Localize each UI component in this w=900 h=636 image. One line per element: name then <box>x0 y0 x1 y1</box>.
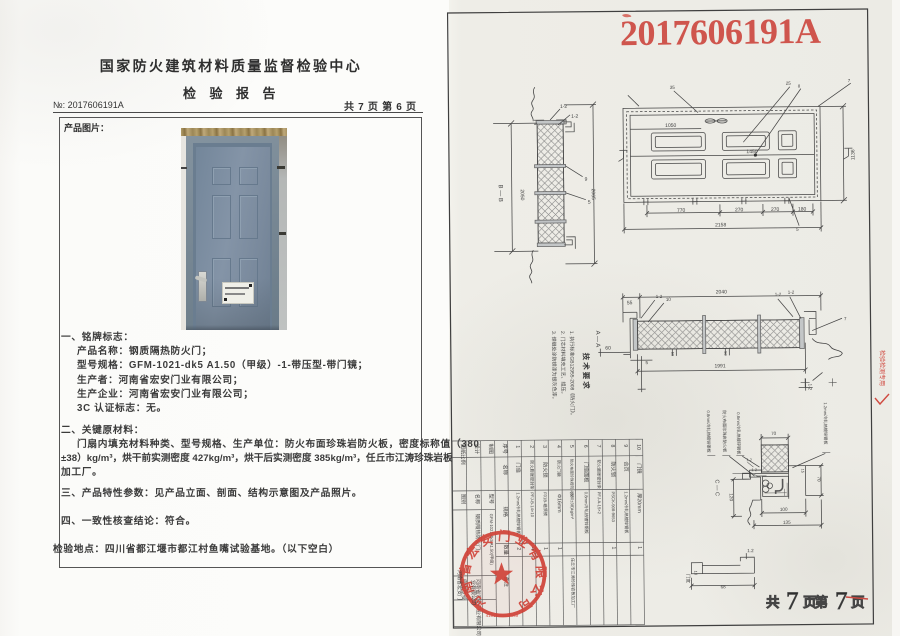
svg-text:任丘市江涛珍珠岩板加工厂: 任丘市江涛珍珠岩板加工厂 <box>569 558 576 608</box>
svg-text:2065: 2065 <box>590 189 596 200</box>
svg-text:9: 9 <box>585 177 588 183</box>
svg-text:0.8mm冷轧热镀锌钢板: 0.8mm冷轧热镀锌钢板 <box>583 492 590 535</box>
svg-text:序号: 序号 <box>501 443 509 453</box>
svg-text:PFJ-B-14×10: PFJ-B-14×10 <box>530 492 535 518</box>
svg-text:2040: 2040 <box>716 289 727 295</box>
svg-text:B — B: B — B <box>497 185 503 202</box>
svg-text:规格: 规格 <box>502 506 510 517</box>
svg-text:1-2: 1-2 <box>775 292 782 297</box>
svg-text:型号: 型号 <box>488 494 496 504</box>
svg-text:1: 1 <box>514 445 520 448</box>
svg-text:(380±38)kg/m³: (380±38)kg/m³ <box>570 492 575 520</box>
svg-text:河南省宏安门: 河南省宏安门 <box>456 570 463 600</box>
svg-text:100: 100 <box>780 507 788 512</box>
svg-text:55: 55 <box>627 300 633 306</box>
svg-text:Φ16mm: Φ16mm <box>556 494 562 513</box>
svg-text:7: 7 <box>844 316 847 321</box>
svg-text:名称: 名称 <box>501 464 509 474</box>
svg-text:页第: 页第 <box>803 594 829 610</box>
svg-text:门镜: 门镜 <box>635 463 643 473</box>
svg-text:1: 1 <box>610 546 616 549</box>
svg-text:设计: 设计 <box>473 444 481 454</box>
svg-text:1.2: 1.2 <box>747 548 754 553</box>
svg-text:门扇面板: 门扇面板 <box>582 462 590 484</box>
svg-text:1-2: 1-2 <box>746 458 752 462</box>
svg-text:120: 120 <box>729 493 734 501</box>
svg-text:70: 70 <box>771 431 777 436</box>
svg-text:1-2: 1-2 <box>788 290 795 295</box>
svg-text:F01B-磁质锁: F01B-磁质锁 <box>542 492 549 517</box>
svg-text:10: 10 <box>635 444 641 450</box>
svg-text:8: 8 <box>609 444 615 447</box>
svg-text:10: 10 <box>666 297 672 302</box>
svg-text:2. 门芯材料填充工艺、组压。: 2. 门芯材料填充工艺、组压。 <box>559 331 567 397</box>
svg-text:技术要求: 技术要求 <box>581 353 591 391</box>
svg-text:6: 6 <box>582 445 588 448</box>
svg-text:0.8mm冷轧热镀锌钢板: 0.8mm冷轧热镀锌钢板 <box>735 412 742 455</box>
svg-text:2017606191A: 2017606191A <box>620 11 821 53</box>
svg-text:1-2: 1-2 <box>560 104 568 110</box>
svg-text:770: 770 <box>677 208 686 214</box>
svg-text:1.2mm冷轧热镀锌钢板: 1.2mm冷轧热镀锌钢板 <box>515 492 522 535</box>
svg-text:5: 5 <box>588 200 591 206</box>
svg-text:C — C: C — C <box>714 479 720 496</box>
svg-text:2050: 2050 <box>519 189 525 200</box>
svg-text:7: 7 <box>786 588 799 615</box>
svg-text:防火膨胀密封条: 防火膨胀密封条 <box>595 460 602 490</box>
svg-text:门扇: 门扇 <box>514 462 522 472</box>
svg-text:270: 270 <box>735 207 744 213</box>
svg-text:1136: 1136 <box>850 149 856 160</box>
svg-text:1.2mm冷轧热镀锌钢板: 1.2mm冷轧热镀锌钢板 <box>623 491 630 534</box>
svg-text:25: 25 <box>786 81 792 86</box>
svg-text:4: 4 <box>555 445 561 448</box>
svg-text:防火锁: 防火锁 <box>609 461 617 477</box>
svg-text:门宽: 门宽 <box>684 574 691 584</box>
svg-text:制图: 制图 <box>487 444 495 454</box>
svg-text:2: 2 <box>528 445 534 448</box>
svg-text:7: 7 <box>595 445 601 448</box>
svg-text:4101050001099: 4101050001099 <box>486 613 519 618</box>
svg-text:业有限公司: 业有限公司 <box>470 580 477 605</box>
svg-text:1050: 1050 <box>665 123 676 129</box>
svg-text:1991: 1991 <box>714 363 725 369</box>
svg-text:50: 50 <box>670 352 674 356</box>
svg-text:3. 焊缝处涂防锈漆为银灰色漆。: 3. 焊缝处涂防锈漆为银灰色漆。 <box>550 331 558 402</box>
svg-text:图别: 图别 <box>460 494 468 504</box>
svg-text:1: 1 <box>556 547 562 550</box>
svg-text:1: 1 <box>636 546 642 549</box>
svg-text:合页: 合页 <box>622 461 630 471</box>
svg-text:1: 1 <box>542 547 548 550</box>
svg-text:7: 7 <box>835 588 848 615</box>
svg-text:名称: 名称 <box>474 494 482 504</box>
svg-text:15: 15 <box>800 469 804 473</box>
svg-text:70: 70 <box>817 476 822 482</box>
svg-text:5: 5 <box>645 360 648 365</box>
svg-text:35: 35 <box>670 85 676 90</box>
svg-text:1-2: 1-2 <box>808 384 813 391</box>
svg-text:1-2: 1-2 <box>656 294 663 299</box>
svg-text:13: 13 <box>693 571 698 576</box>
svg-text:防火锁: 防火锁 <box>541 462 549 478</box>
svg-text:1450: 1450 <box>746 149 757 155</box>
svg-text:PFJ-A-15×2: PFJ-A-15×2 <box>597 492 602 515</box>
svg-text:3: 3 <box>541 445 547 448</box>
svg-text:图纸比例: 图纸比例 <box>459 444 467 465</box>
svg-text:50: 50 <box>723 351 727 355</box>
svg-text:270: 270 <box>771 207 780 213</box>
svg-text:8: 8 <box>798 84 801 89</box>
svg-text:60: 60 <box>605 345 611 351</box>
svg-text:1-2: 1-2 <box>751 468 757 472</box>
svg-text:检验检测专用: 检验检测专用 <box>878 350 886 386</box>
svg-text:防火布面珍珠岩防火板: 防火布面珍珠岩防火板 <box>721 410 728 453</box>
svg-text:1.2mm冷轧热镀锌钢板: 1.2mm冷轧热镀锌钢板 <box>822 402 829 445</box>
svg-text:1. 执行标准GB12955-2008《防火门》。: 1. 执行标准GB12955-2008《防火门》。 <box>568 331 576 418</box>
svg-text:180: 180 <box>798 207 807 213</box>
svg-text:厚20mm: 厚20mm <box>636 493 643 513</box>
svg-text:5: 5 <box>568 445 574 448</box>
svg-text:共: 共 <box>766 594 780 610</box>
svg-text:9: 9 <box>622 444 628 447</box>
svg-text:0.8mm冷轧热镀锌钢板: 0.8mm冷轧热镀锌钢板 <box>705 411 712 454</box>
svg-text:PSCK-908-9653: PSCK-908-9653 <box>611 491 616 522</box>
svg-text:1-2: 1-2 <box>571 114 579 120</box>
svg-text:68: 68 <box>721 584 727 589</box>
svg-text:防火门镜: 防火门镜 <box>555 460 562 478</box>
svg-text:防火膨胀密封条: 防火膨胀密封条 <box>528 460 535 490</box>
svg-text:2158: 2158 <box>715 222 726 228</box>
svg-text:7: 7 <box>848 78 851 83</box>
svg-text:A — A: A — A <box>594 331 600 348</box>
svg-text:135: 135 <box>783 520 791 525</box>
